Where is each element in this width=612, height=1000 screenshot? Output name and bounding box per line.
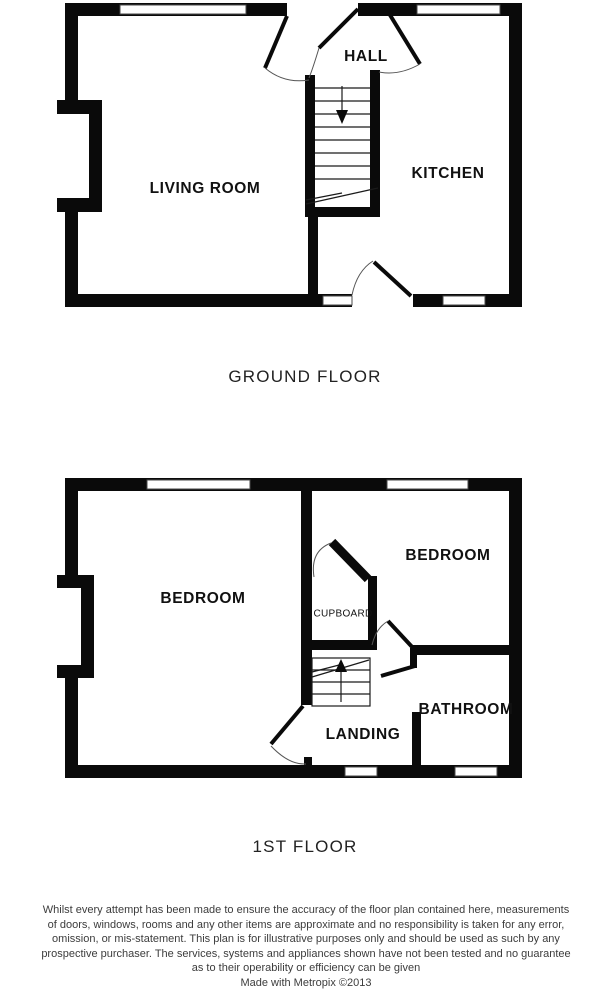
back-door-leaf: [374, 262, 411, 296]
window: [323, 296, 352, 305]
disclaimer-line: Whilst every attempt has been made to en…: [0, 903, 612, 918]
first-floor-plan: [57, 478, 522, 778]
wall: [65, 678, 78, 778]
window: [443, 296, 485, 305]
disclaimer-line: as to their operability or efficiency ca…: [0, 961, 612, 976]
first-floor-caption: 1ST FLOOR: [253, 837, 358, 857]
room-label-kitchen: KITCHEN: [411, 165, 484, 183]
door-swing-arc: [271, 746, 306, 764]
cupboard-wall: [301, 640, 377, 650]
chimney-recess-flange: [57, 575, 94, 588]
bathroom-door-leaf: [381, 666, 415, 676]
door-jamb: [304, 757, 312, 767]
wall: [65, 478, 78, 575]
chimney-recess-wall: [81, 588, 94, 665]
bathroom-wall: [412, 712, 421, 765]
room-label-bedroom-left: BEDROOM: [160, 590, 245, 608]
bedroom-door-leaf: [271, 706, 303, 744]
wall: [509, 478, 522, 778]
door-swing-arc: [313, 543, 331, 577]
floorplan-page: { "ground_floor": { "caption": "GROUND F…: [0, 0, 612, 1000]
window: [455, 767, 497, 776]
understairs-wall: [308, 215, 318, 294]
room-label-landing: LANDING: [326, 726, 401, 744]
room-label-bedroom-right: BEDROOM: [405, 547, 490, 565]
room-label-living-room: LIVING ROOM: [150, 180, 261, 198]
ground-floor-caption: GROUND FLOOR: [228, 367, 381, 387]
window: [120, 5, 246, 14]
front-door-leaf: [319, 9, 358, 48]
stair-wall: [305, 75, 315, 215]
stair-wall: [370, 70, 380, 215]
living-room-door-leaf: [265, 16, 287, 68]
wall: [509, 3, 522, 307]
stairs-break-line: [306, 188, 378, 204]
kitchen-door-leaf: [390, 15, 420, 64]
disclaimer-line: omission, or mis-statement. This plan is…: [0, 932, 612, 947]
bedroom-bathroom-wall: [413, 645, 522, 655]
wall: [65, 3, 78, 100]
door-swing-arc: [352, 261, 373, 295]
room-label-cupboard: CUPBOARD: [313, 609, 372, 620]
wall: [65, 294, 352, 307]
window: [417, 5, 500, 14]
door-swing-arc: [309, 48, 319, 78]
bedroom-divider-wall: [301, 491, 312, 705]
room-label-hall: HALL: [344, 48, 388, 66]
window: [147, 480, 250, 489]
wall: [65, 212, 78, 307]
disclaimer-line: of doors, windows, rooms and any other i…: [0, 918, 612, 933]
disclaimer-text: Whilst every attempt has been made to en…: [0, 903, 612, 991]
chimney-recess-flange: [57, 665, 94, 678]
cupboard-angled-wall: [332, 542, 368, 579]
window: [387, 480, 468, 489]
ground-floor-plan: [57, 3, 522, 307]
credit-line: Made with Metropix ©2013: [0, 976, 612, 991]
door-swing-arc: [265, 68, 309, 81]
wall: [65, 765, 522, 778]
chimney-recess-wall: [89, 114, 102, 198]
chimney-recess-flange: [57, 198, 102, 212]
window: [345, 767, 377, 776]
chimney-recess-flange: [57, 100, 102, 114]
disclaimer-line: prospective purchaser. The services, sys…: [0, 947, 612, 962]
room-label-bathroom: BATHROOM: [419, 701, 514, 719]
bedroom-door-leaf: [388, 621, 414, 649]
stairs-down-arrow-head: [336, 110, 348, 124]
